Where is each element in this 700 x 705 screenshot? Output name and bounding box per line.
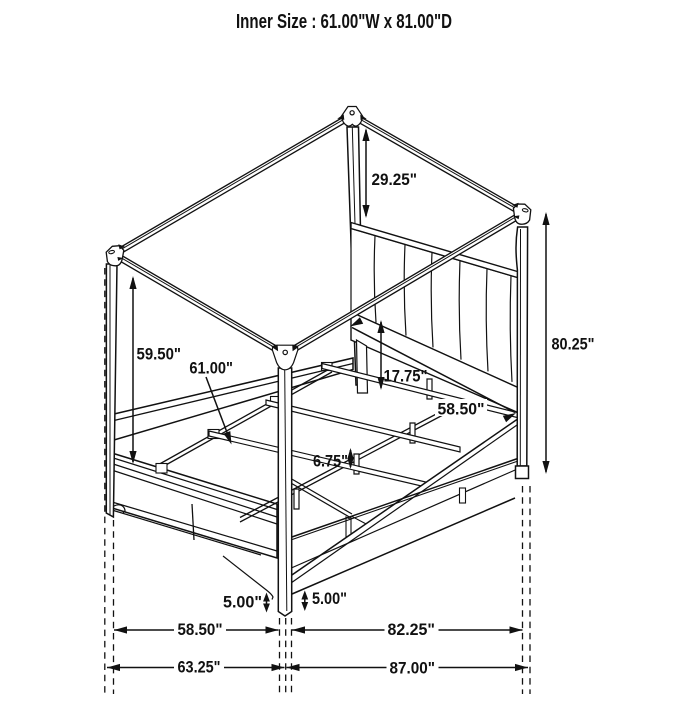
svg-text:80.25": 80.25" [552, 335, 595, 354]
svg-text:58.50": 58.50" [438, 400, 485, 419]
svg-text:6.75": 6.75" [313, 452, 348, 471]
svg-text:17.75": 17.75" [384, 367, 428, 386]
svg-text:87.00": 87.00" [390, 659, 436, 678]
svg-text:82.25": 82.25" [388, 620, 436, 639]
svg-text:Inner Size : 61.00"W x 81.00"D: Inner Size : 61.00"W x 81.00"D [236, 11, 452, 33]
svg-text:59.50": 59.50" [137, 345, 182, 364]
svg-text:58.50": 58.50" [178, 620, 223, 639]
svg-text:29.25": 29.25" [372, 170, 418, 189]
svg-text:5.00": 5.00" [312, 589, 347, 608]
svg-text:61.00": 61.00" [189, 358, 233, 377]
svg-text:5.00": 5.00" [223, 593, 262, 612]
svg-text:63.25": 63.25" [178, 658, 221, 677]
